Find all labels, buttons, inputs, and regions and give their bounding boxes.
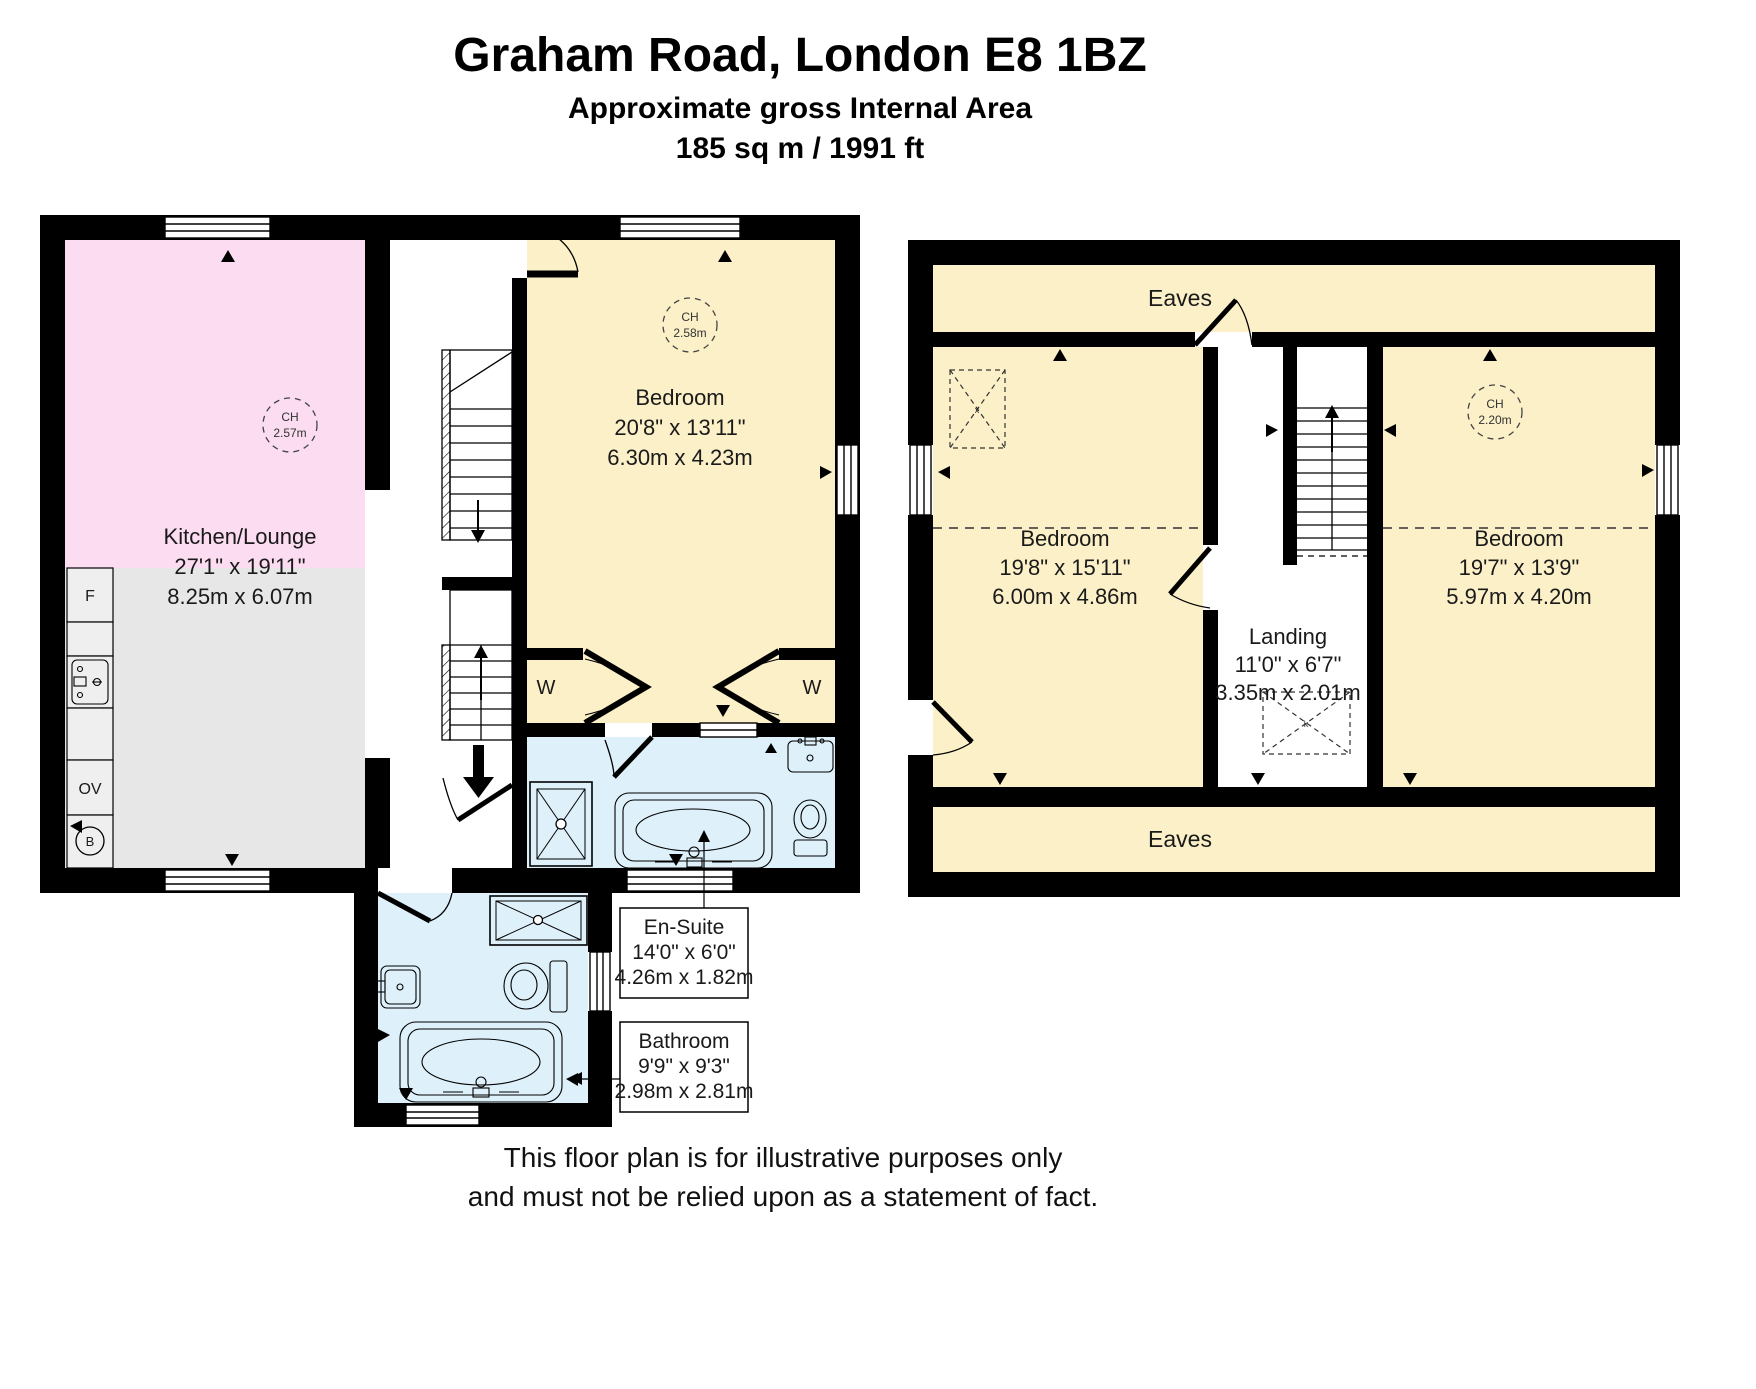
window-bathroom-bottom — [406, 1105, 479, 1125]
ch-label: CH — [1486, 397, 1503, 411]
window-bathroom-right — [590, 952, 610, 1011]
stairs-down-arrow — [463, 745, 494, 798]
window-bedroom-right-wall — [1657, 445, 1678, 515]
oven-label: OV — [78, 781, 101, 798]
window-kitchen-bottom — [165, 870, 270, 891]
ch-label: CH — [681, 310, 698, 324]
fridge-label: F — [85, 588, 95, 605]
bedroom-right-imperial: 19'7" x 13'9" — [1459, 555, 1580, 580]
bedroom-imperial: 20'8" x 13'11" — [614, 415, 745, 440]
bathroom-metric: 2.98m x 2.81m — [615, 1080, 754, 1103]
disclaimer-line2: and must not be relied upon as a stateme… — [0, 1177, 1566, 1216]
window-ensuite-internal — [700, 723, 757, 737]
ensuite-metric: 4.26m x 1.82m — [615, 966, 754, 989]
ensuite-imperial: 14'0" x 6'0" — [632, 941, 736, 964]
ground-floor-plan: CH 2.57m CH 2.58m Kitchen/Lounge 27'1" x… — [40, 215, 860, 1127]
floorplan-page: Graham Road, London E8 1BZ Approximate g… — [0, 0, 1756, 1389]
boiler-label: B — [86, 834, 95, 849]
skylight-mark: x — [975, 405, 980, 415]
bedroom-left-imperial: 19'8" x 15'11" — [999, 555, 1130, 580]
ch-value: 2.58m — [673, 326, 706, 340]
first-floor-plan: x k CH 2.20m Eaves Eaves Bedroom 19'8" x… — [908, 240, 1680, 897]
kitchen-metric: 8.25m x 6.07m — [167, 584, 313, 609]
ch-label: CH — [281, 410, 298, 424]
bedroom-metric: 6.30m x 4.23m — [607, 445, 753, 470]
eaves-top-label: Eaves — [1148, 285, 1212, 311]
landing-name: Landing — [1249, 624, 1327, 649]
bedroom-name: Bedroom — [635, 385, 724, 410]
kitchen-name: Kitchen/Lounge — [164, 524, 317, 549]
ch-value: 2.20m — [1478, 413, 1511, 427]
eaves-bottom-label: Eaves — [1148, 826, 1212, 852]
landing-imperial: 11'0" x 6'7" — [1235, 652, 1342, 677]
ensuite-name: En-Suite — [644, 916, 725, 939]
window-bedroom-top — [620, 217, 740, 238]
ground-floor-stairs — [442, 350, 512, 740]
window-ensuite-bottom — [627, 870, 733, 891]
wardrobe-label: W — [803, 677, 822, 699]
disclaimer-line1: This floor plan is for illustrative purp… — [0, 1138, 1566, 1177]
skylight-mark: k — [1304, 719, 1309, 729]
window-kitchen-top — [165, 217, 270, 238]
bedroom-right-name: Bedroom — [1474, 526, 1563, 551]
bedroom-left-metric: 6.00m x 4.86m — [992, 584, 1138, 609]
landing-metric: 3.35m x 2.01m — [1215, 680, 1361, 705]
wardrobe-label: W — [537, 677, 556, 699]
bathroom-name: Bathroom — [638, 1030, 729, 1053]
kitchen-imperial: 27'1" x 19'11" — [174, 554, 305, 579]
disclaimer: This floor plan is for illustrative purp… — [0, 1138, 1566, 1216]
bathroom-imperial: 9'9" x 9'3" — [638, 1055, 730, 1078]
kitchen-units — [67, 568, 113, 868]
window-bedroom-right — [837, 445, 858, 515]
ch-value: 2.57m — [273, 426, 306, 440]
bedroom-right-metric: 5.97m x 4.20m — [1446, 584, 1592, 609]
bedroom-left-name: Bedroom — [1020, 526, 1109, 551]
first-floor-stairs — [1297, 347, 1367, 565]
window-bedroom-left-wall — [910, 445, 931, 515]
